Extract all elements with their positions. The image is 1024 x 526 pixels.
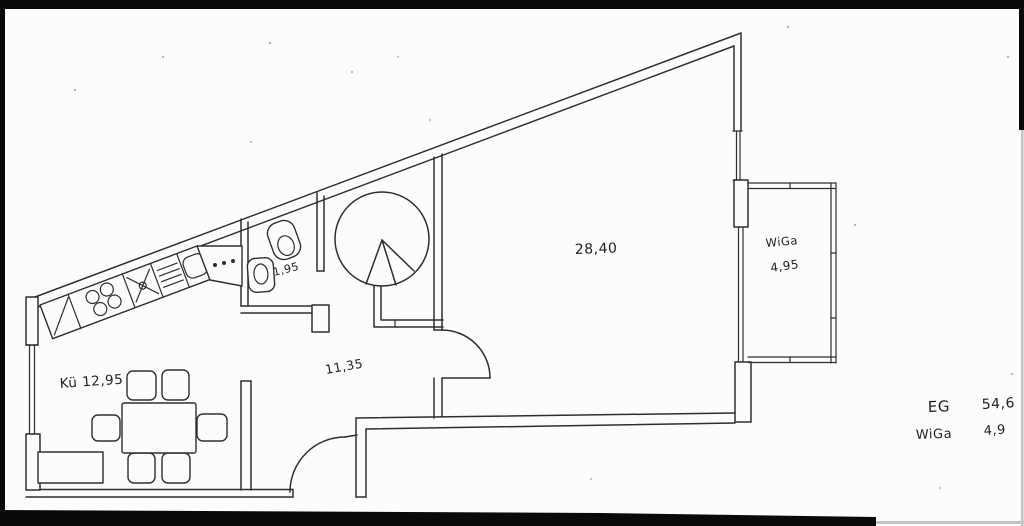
wintergarden-area-label: 4,95 <box>769 257 799 275</box>
legend-wiga-value: 4,9 <box>983 422 1006 439</box>
wc-area-label: 1,95 <box>272 260 301 279</box>
wall-pillar <box>26 297 38 345</box>
wintergarden-name-label: WiGa <box>765 233 798 250</box>
chair <box>128 453 155 483</box>
chair <box>92 415 120 441</box>
bench <box>38 452 103 483</box>
wall-pillar <box>734 180 748 227</box>
doors <box>290 330 490 492</box>
scanned-page: Kü 12,95 1,95 11,35 28,40 WiGa 4,95 EG 5… <box>0 0 1024 526</box>
chair <box>162 453 190 483</box>
wall-pillar <box>735 362 751 422</box>
floor-plan-canvas: Kü 12,95 1,95 11,35 28,40 WiGa 4,95 EG 5… <box>0 0 1024 526</box>
kitchen-label: Kü 12,95 <box>59 372 124 392</box>
area-legend: EG 54,6 WiGa 4,9 <box>916 395 1016 443</box>
south-wall-inner <box>356 413 735 418</box>
washbasin-icon <box>247 257 275 293</box>
spiral-stairs <box>335 192 429 286</box>
stairs-circle <box>335 192 429 286</box>
wc-fixtures <box>247 217 304 293</box>
chair <box>127 371 156 400</box>
legend-wiga-label: WiGa <box>916 427 953 443</box>
kitchen-counter <box>40 245 242 339</box>
window-symbol-right-wall <box>733 131 742 180</box>
window-symbol-left-wall <box>26 345 38 434</box>
living-area-label: 28,40 <box>575 241 618 258</box>
dining-table <box>122 403 196 453</box>
legend-eg-value: 54,6 <box>981 395 1015 413</box>
chair <box>197 414 227 441</box>
entry-door-swing-arc <box>290 435 357 492</box>
wall-pillar <box>312 305 329 332</box>
legend-eg-label: EG <box>928 397 951 416</box>
chair <box>162 370 189 400</box>
living-room-door-swing-arc <box>442 330 490 378</box>
toilet-icon <box>264 217 303 262</box>
wintergarden-walls <box>748 183 836 363</box>
south-wall-outer <box>366 423 735 429</box>
hall-area-label: 11,35 <box>324 356 364 377</box>
